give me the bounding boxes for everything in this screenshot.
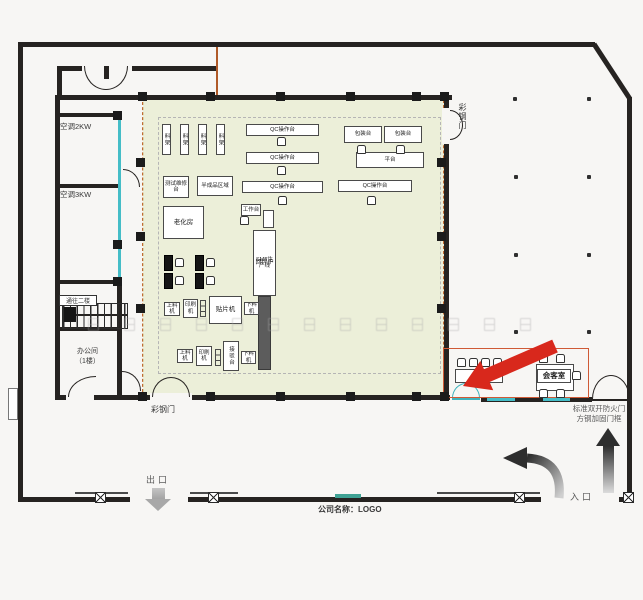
watermark — [196, 318, 207, 331]
watermark — [340, 318, 351, 331]
red-direction-arrow — [455, 334, 563, 398]
curved-turn-arrow — [493, 444, 573, 500]
watermark — [376, 318, 387, 331]
entrance-up-arrow — [596, 428, 620, 446]
exit-down-arrow — [145, 499, 171, 511]
watermark — [124, 318, 135, 331]
watermark — [160, 318, 171, 331]
watermark — [448, 318, 459, 331]
watermark — [412, 318, 423, 331]
watermark — [268, 318, 279, 331]
watermark — [88, 318, 99, 331]
watermark — [304, 318, 315, 331]
chamfer-wall — [0, 0, 643, 600]
watermark — [520, 318, 531, 331]
exit-down-arrow — [152, 488, 165, 499]
floor-plan-canvas: 通往二楼 空调2KW 空调3KW 办公间 （1楼） 彩钢门 彩钢门 标准双开防火… — [0, 0, 643, 600]
entrance-up-arrow — [603, 446, 614, 493]
watermark — [484, 318, 495, 331]
watermark — [232, 318, 243, 331]
